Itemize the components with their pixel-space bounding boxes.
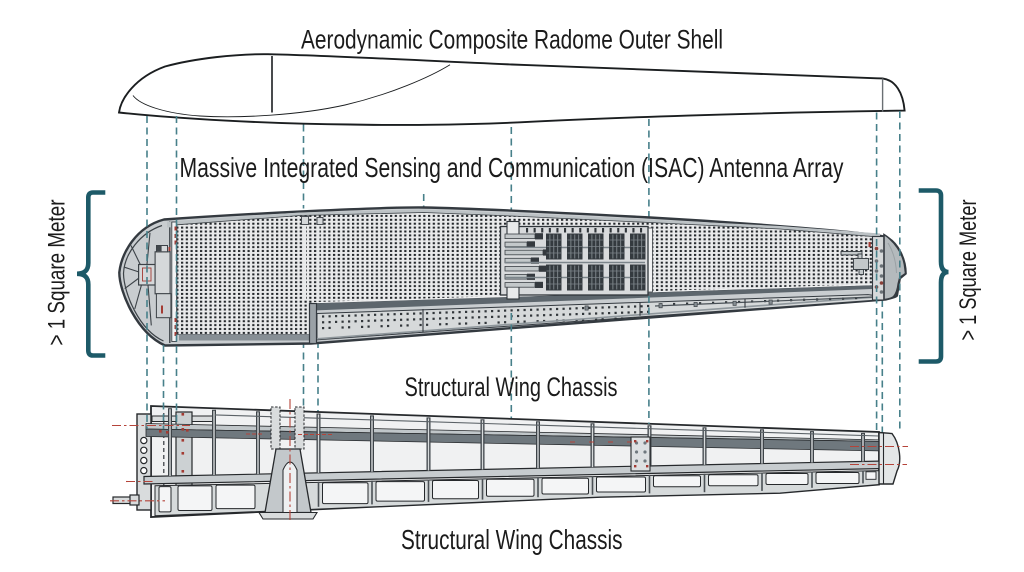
svg-text:Structural Wing Chassis: Structural Wing Chassis bbox=[405, 372, 618, 402]
svg-text:> 1 Square Meter: > 1 Square Meter bbox=[44, 199, 71, 345]
svg-text:Massive Integrated Sensing and: Massive Integrated Sensing and Communica… bbox=[180, 152, 844, 183]
svg-text:Structural Wing Chassis: Structural Wing Chassis bbox=[401, 524, 623, 555]
svg-text:Aerodynamic Composite Radome O: Aerodynamic Composite Radome Outer Shell bbox=[301, 25, 723, 55]
svg-text:> 1 Square Meter: > 1 Square Meter bbox=[955, 199, 982, 340]
